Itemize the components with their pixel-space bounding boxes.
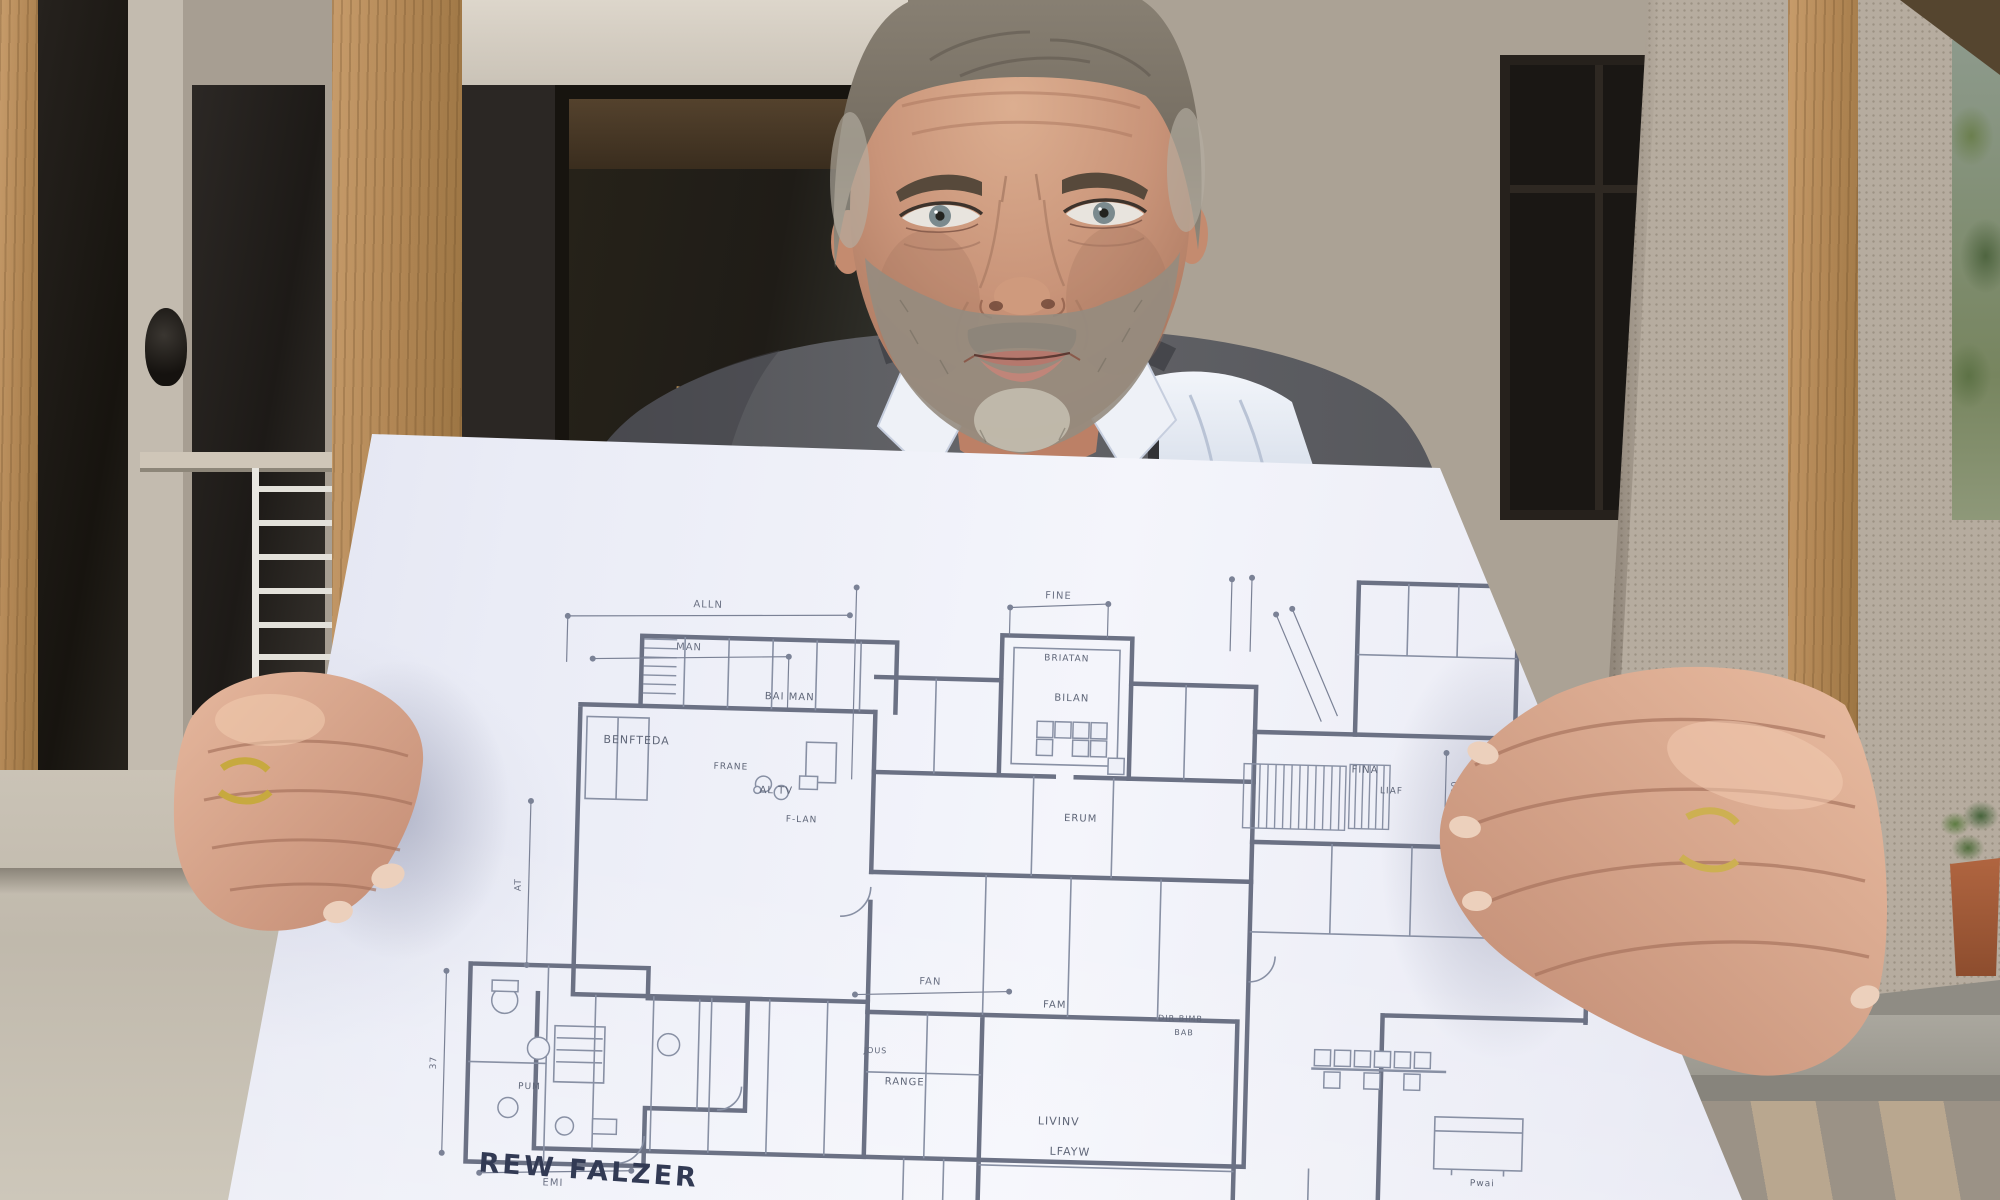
hair-silver-right: [1167, 108, 1205, 232]
hair-silver-left: [830, 112, 870, 248]
timber-post-far-left: [0, 0, 38, 880]
bed-furniture: [1433, 1117, 1522, 1177]
plan-label: BAB: [1174, 1028, 1194, 1038]
plan-label: LIVINV: [1038, 1114, 1080, 1128]
wall-sconce-light: [145, 308, 187, 386]
plan-label: FINA: [1351, 764, 1378, 776]
plan-label: BRIATAN: [1044, 653, 1089, 664]
staircase-hatching: [640, 639, 1393, 832]
chin-gray-patch: [974, 388, 1070, 452]
plan-label: AT: [514, 878, 524, 891]
plan-label: PUM: [518, 1082, 541, 1093]
plan-label: F-LAN: [786, 815, 818, 826]
plan-label: BENFTEDA: [603, 733, 670, 748]
plan-label: FAM: [1043, 999, 1067, 1011]
plan-label: MAN: [676, 642, 702, 654]
plan-label: FRANE: [713, 762, 748, 773]
plan-label: 37: [429, 1056, 439, 1070]
plan-label: DIR BIMB: [1158, 1013, 1203, 1023]
plan-label: LIAF: [1380, 786, 1403, 797]
dark-entry-door: [38, 0, 128, 868]
garden-trees: [1952, 40, 2000, 520]
plan-label: LFAYW: [1049, 1145, 1090, 1159]
plan-label: FAN: [919, 976, 941, 988]
right-hand: [160, 640, 450, 950]
plan-label: BAI MAN: [765, 691, 815, 703]
left-hand: [1425, 645, 1905, 1115]
photo-scene: ALLNMANFINEFANEMI37AT30BENFTEDABAI MANBR…: [0, 0, 2000, 1200]
plan-label: ALLN: [693, 599, 723, 611]
console-shelf: [140, 452, 332, 468]
knuckle-highlight: [215, 694, 325, 746]
floor-plan-labels: ALLNMANFINEFANEMI37AT30BENFTEDABAI MANBR…: [426, 575, 1510, 1200]
terracotta-pot: [1950, 858, 2000, 976]
plan-label: JOUS: [863, 1046, 888, 1056]
plan-label: AL TV: [759, 785, 793, 797]
plan-label: BILAN: [1054, 693, 1089, 705]
plan-label: RANGE: [885, 1076, 925, 1088]
plan-label: FINE: [1045, 590, 1072, 602]
dimension-lines: [439, 555, 1454, 1200]
plan-label: Pwai: [1470, 1179, 1495, 1190]
plan-label: ERUM: [1064, 813, 1097, 825]
window-mullion: [1595, 65, 1603, 510]
